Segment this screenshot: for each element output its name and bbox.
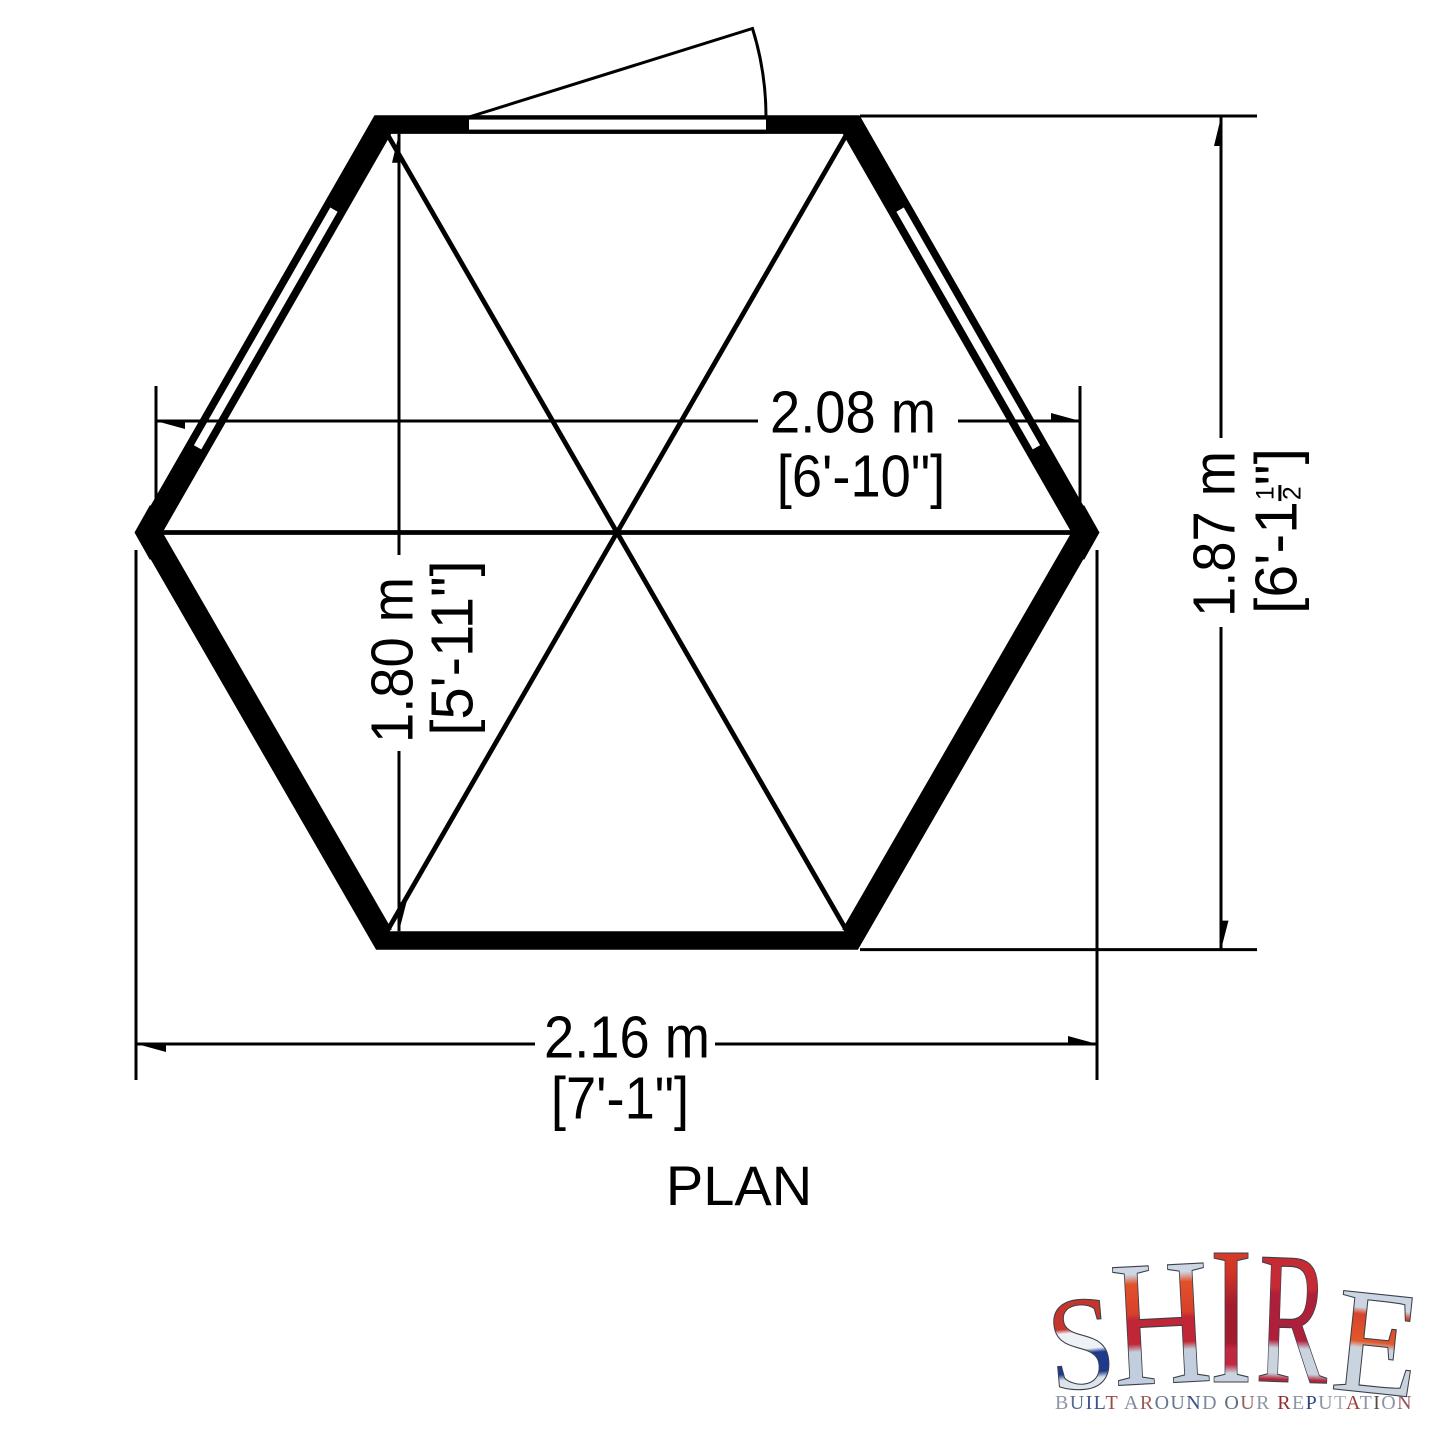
svg-text:BUILT AROUND OUR REPUTATION: BUILT AROUND OUR REPUTATION [1055, 1392, 1413, 1414]
